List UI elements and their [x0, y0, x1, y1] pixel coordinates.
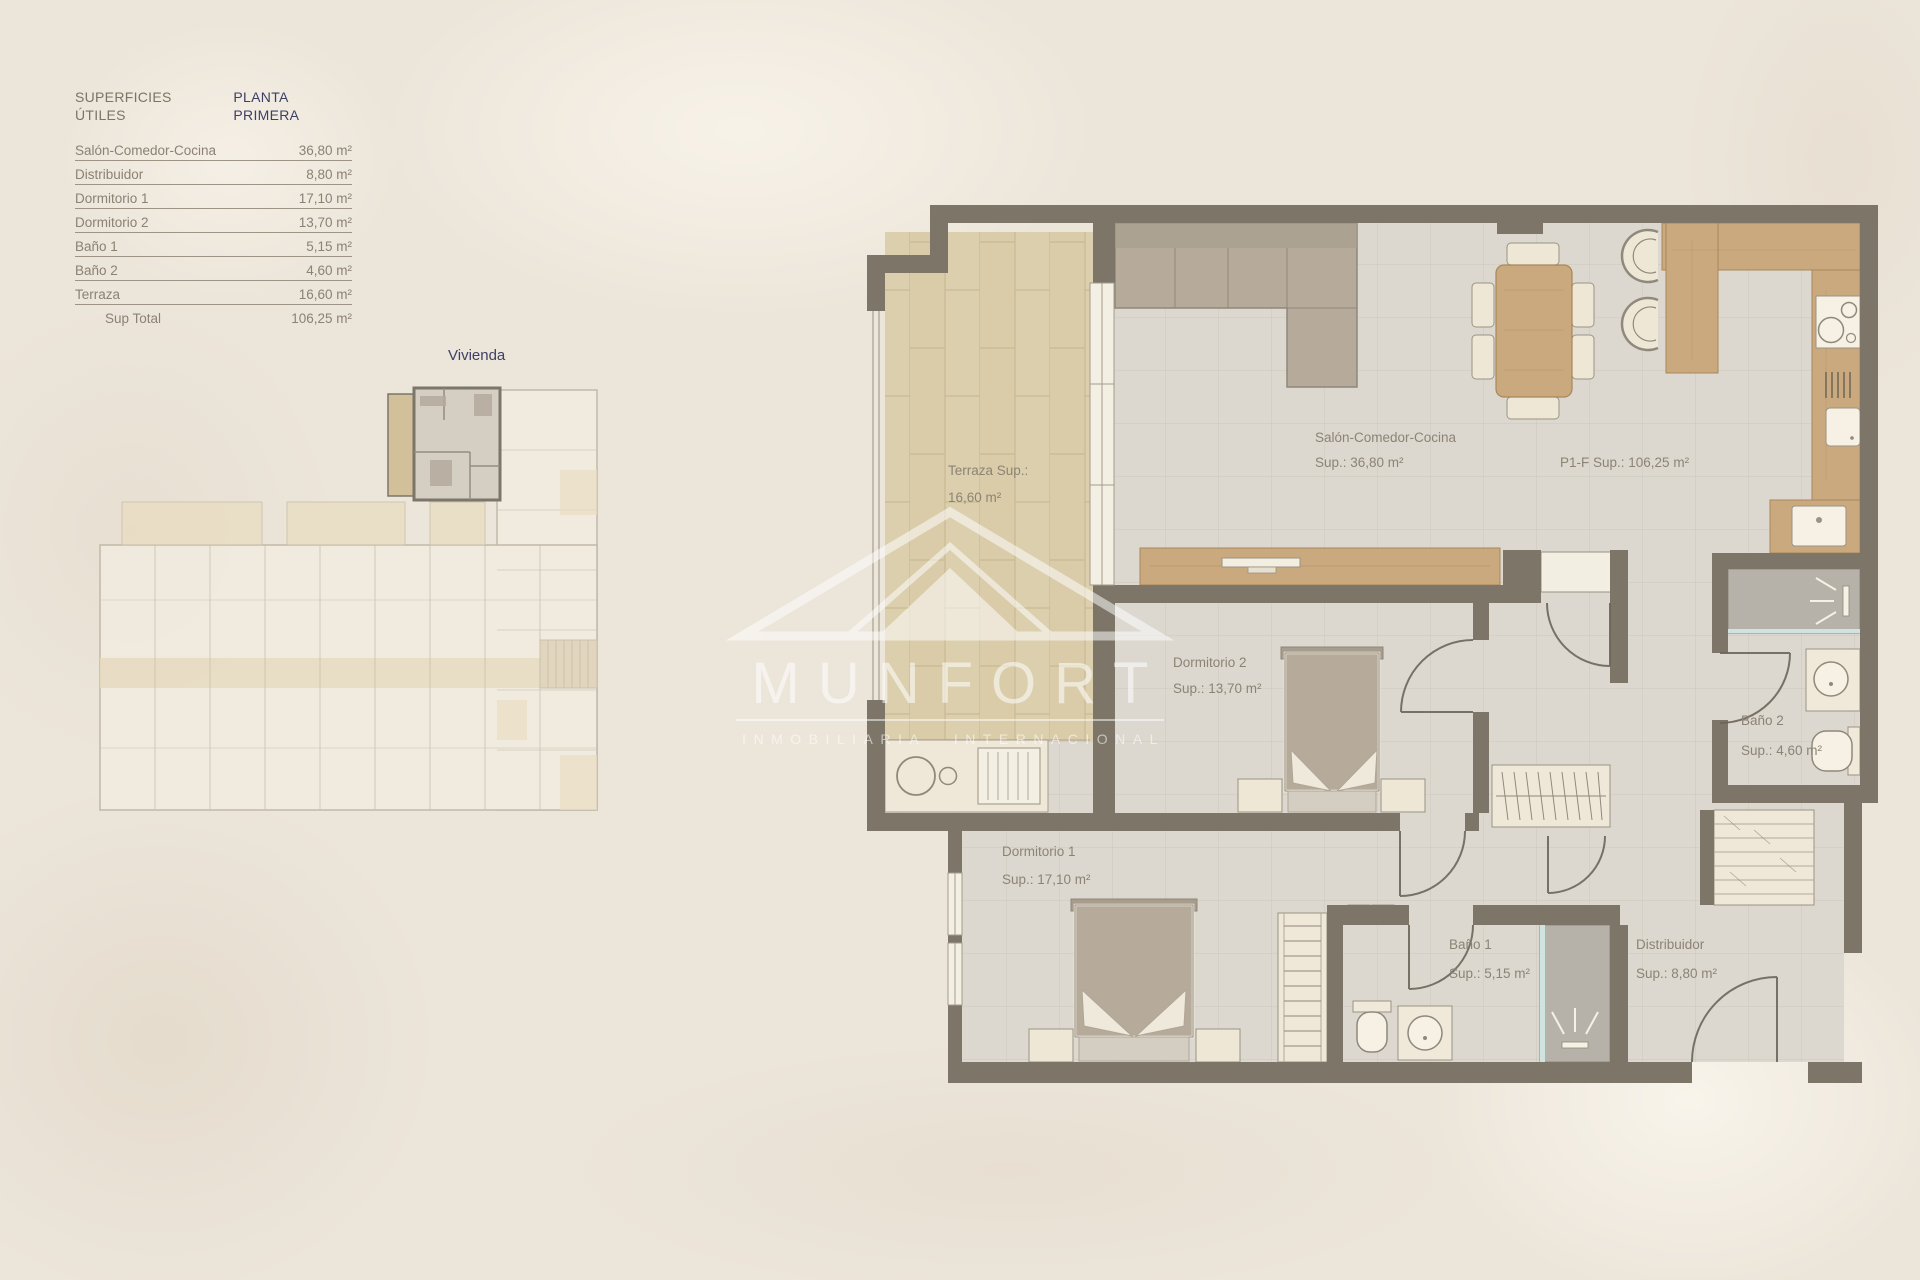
- highlighted-unit: [388, 388, 500, 500]
- room-area-salon: Sup.: 36,80 m²: [1315, 456, 1404, 470]
- row-value: 16,60 m²: [299, 287, 352, 302]
- watermark-brand: MUNFORT: [734, 650, 1167, 717]
- room-label-distribuidor: Distribuidor: [1636, 938, 1704, 952]
- areas-table: SUPERFICIES ÚTILES PLANTA PRIMERA Salón-…: [75, 88, 352, 326]
- floor-plan-sheet: SUPERFICIES ÚTILES PLANTA PRIMERA Salón-…: [0, 0, 1920, 1280]
- building-overview: [100, 388, 597, 810]
- room-area-dormitorio-2: Sup.: 13,70 m²: [1173, 682, 1262, 696]
- nightstand: [1238, 779, 1282, 812]
- room-area-dormitorio-1: Sup.: 17,10 m²: [1002, 873, 1091, 887]
- unit-area-label: P1-F Sup.: 106,25 m²: [1560, 456, 1689, 470]
- dorm1-window: [948, 873, 962, 935]
- room-area-bano-2: Sup.: 4,60 m²: [1741, 744, 1822, 758]
- total-value: 106,25 m²: [291, 311, 352, 326]
- areas-table-header: SUPERFICIES ÚTILES PLANTA PRIMERA: [75, 88, 352, 124]
- room-label-dormitorio-1: Dormitorio 1: [1002, 845, 1076, 859]
- areas-table-title: SUPERFICIES ÚTILES: [75, 88, 219, 124]
- table-row: Salón-Comedor-Cocina 36,80 m²: [75, 137, 352, 161]
- row-label: Baño 2: [75, 263, 118, 278]
- row-label: Dormitorio 1: [75, 191, 149, 206]
- floor-name: PLANTA PRIMERA: [233, 88, 352, 124]
- room-label-salon: Salón-Comedor-Cocina: [1315, 431, 1456, 445]
- row-value: 8,80 m²: [306, 167, 352, 182]
- hall-cabinet: [1541, 552, 1611, 592]
- table-row: Baño 1 5,15 m²: [75, 233, 352, 257]
- toilet-bano-1: [1353, 1001, 1391, 1052]
- row-label: Distribuidor: [75, 167, 143, 182]
- table-row: Dormitorio 1 17,10 m²: [75, 185, 352, 209]
- hall-hanger-wardrobe: [1492, 765, 1610, 827]
- table-total-row: Sup Total 106,25 m²: [75, 305, 352, 326]
- dorm1-window: [948, 943, 962, 1005]
- overview-unit-label: Vivienda: [448, 349, 505, 363]
- row-label: Terraza: [75, 287, 120, 302]
- terrace-slider-window: [1090, 283, 1114, 585]
- tv-sideboard: [1140, 548, 1500, 585]
- table-row: Distribuidor 8,80 m²: [75, 161, 352, 185]
- row-value: 17,10 m²: [299, 191, 352, 206]
- nightstand: [1029, 1029, 1073, 1062]
- nightstand: [1196, 1029, 1240, 1062]
- table-row: Terraza 16,60 m²: [75, 281, 352, 305]
- room-label-terraza: Terraza Sup.:: [948, 464, 1028, 478]
- row-value: 4,60 m²: [306, 263, 352, 278]
- row-value: 13,70 m²: [299, 215, 352, 230]
- entry-closet: [1714, 810, 1814, 905]
- row-label: Baño 1: [75, 239, 118, 254]
- kitchen-sink-icon: [1792, 506, 1846, 546]
- shower-bano-2: [1728, 569, 1860, 633]
- row-label: Dormitorio 2: [75, 215, 149, 230]
- row-value: 5,15 m²: [306, 239, 352, 254]
- nightstand: [1381, 779, 1425, 812]
- watermark-divider: [736, 719, 1164, 721]
- row-label: Salón-Comedor-Cocina: [75, 143, 216, 158]
- washbasin-bano-2: [1806, 649, 1860, 711]
- watermark-tagline: INMOBILIARIA INTERNACIONAL: [735, 731, 1165, 747]
- total-label: Sup Total: [105, 311, 161, 326]
- shower-bano-1: [1540, 925, 1610, 1062]
- room-label-bano-1: Baño 1: [1449, 938, 1492, 952]
- utility-counter: [885, 740, 1048, 812]
- table-row: Dormitorio 2 13,70 m²: [75, 209, 352, 233]
- wardrobe-dormitorio-1: [1278, 913, 1327, 1062]
- room-area-bano-1: Sup.: 5,15 m²: [1449, 967, 1530, 981]
- kitchen-appliance-icon: [1826, 408, 1860, 446]
- table-row: Baño 2 4,60 m²: [75, 257, 352, 281]
- room-area-terraza: 16,60 m²: [948, 491, 1001, 505]
- room-area-distribuidor: Sup.: 8,80 m²: [1636, 967, 1717, 981]
- washbasin-bano-1: [1398, 1006, 1452, 1060]
- row-value: 36,80 m²: [299, 143, 352, 158]
- hob-icon: [1816, 296, 1860, 348]
- room-label-bano-2: Baño 2: [1741, 714, 1784, 728]
- room-label-dormitorio-2: Dormitorio 2: [1173, 656, 1247, 670]
